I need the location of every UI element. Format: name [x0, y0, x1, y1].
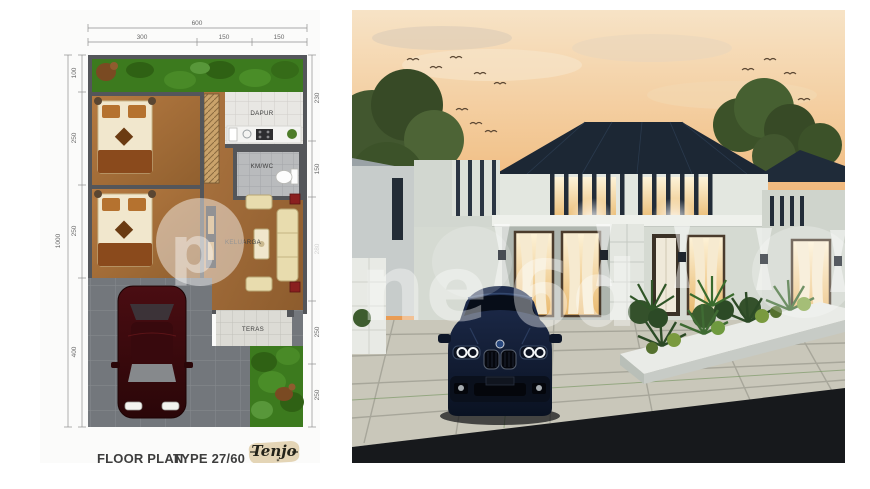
- mirror-right: [184, 362, 193, 368]
- side-path: [212, 346, 250, 427]
- watermark-letters-right: 6d: [508, 241, 638, 348]
- dimension-lines-left: [64, 55, 86, 427]
- dim-left-seg-2: 250: [71, 132, 78, 143]
- logo-text: Tenjo: [251, 442, 296, 460]
- floor-plan-panel: 600 300 150 150 1000 100 250 250 400 230…: [40, 10, 320, 463]
- terrace-post: [287, 310, 294, 317]
- room-label-kitchen: DAPUR: [250, 110, 273, 117]
- floor-plan-title: FLOOR PLAN: [97, 451, 184, 463]
- logo-star-icon: ✶: [276, 458, 280, 463]
- sofa-small-bottom: [246, 277, 272, 291]
- dim-right-seg-5: 250: [314, 389, 320, 400]
- car-top-view: [111, 286, 193, 418]
- tenjo-logo: Tenjo ✶: [249, 441, 300, 463]
- car-headlight-left: [453, 346, 480, 359]
- dim-top-seg-1: 300: [137, 34, 148, 41]
- house-render: ne 6d: [352, 10, 845, 463]
- fog-light: [458, 385, 464, 391]
- dim-top-total: 600: [192, 20, 203, 27]
- car-roof: [131, 322, 173, 362]
- floor-plan-drawing: 600 300 150 150 1000 100 250 250 400 230…: [40, 10, 320, 463]
- kitchen: [225, 92, 303, 148]
- car-bumper: [450, 376, 550, 402]
- headlight-left: [125, 402, 142, 410]
- bmw-roundel-icon: [496, 340, 504, 348]
- house-render-panel: ne 6d: [352, 10, 845, 463]
- dim-right-seg-3: 280: [314, 243, 320, 254]
- front-garden-top: [92, 59, 303, 92]
- wardrobe: [204, 94, 219, 183]
- dim-top-seg-2: 150: [219, 34, 230, 41]
- fridge: [229, 128, 237, 141]
- dimension-lines-right: [308, 55, 316, 427]
- room-label-terrace: TERAS: [242, 326, 264, 333]
- side-table-bottom: [290, 282, 300, 292]
- bathroom: [233, 148, 303, 200]
- stove: [256, 129, 273, 140]
- dim-right-seg-4: 250: [314, 326, 320, 337]
- dim-left-seg-3: 250: [71, 225, 78, 236]
- dim-left-seg-4: 400: [71, 346, 78, 357]
- dim-right-seg-1: 230: [314, 92, 320, 103]
- dim-left-total: 1000: [55, 233, 62, 248]
- page: { "floor_plan": { "title": "FLOOR PLAN",…: [0, 0, 870, 489]
- toilet-icon: [276, 171, 292, 184]
- garden-bottom: [250, 346, 304, 427]
- kitchen-plant: [287, 129, 297, 139]
- side-table-top: [290, 194, 300, 204]
- fog-light: [536, 385, 542, 391]
- dim-right-seg-2: 150: [314, 163, 320, 174]
- dim-top-seg-3: 150: [274, 34, 285, 41]
- sofa-small-top: [246, 195, 272, 209]
- dim-left-seg-1: 100: [71, 67, 78, 78]
- bedroom-1: [92, 96, 200, 185]
- floor-plan-type-label: TYPE 27/60: [173, 451, 245, 463]
- watermark-letter: p: [170, 214, 216, 288]
- sofa-long: [277, 209, 298, 281]
- windshield: [128, 364, 176, 382]
- license-plate: [486, 377, 514, 385]
- rear-window: [130, 304, 174, 320]
- room-label-bath: KM/WC: [251, 163, 274, 170]
- headlight-right: [162, 402, 179, 410]
- mirror-left: [111, 362, 120, 368]
